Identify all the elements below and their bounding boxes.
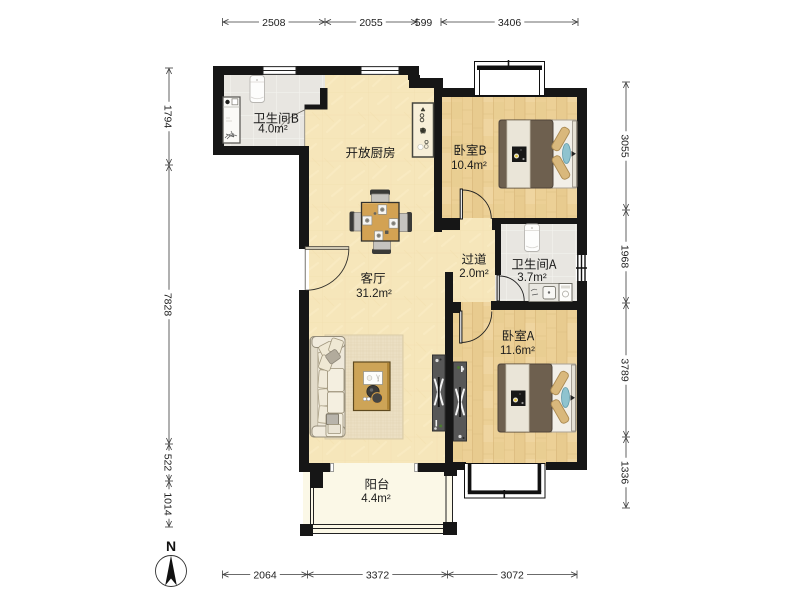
svg-text:599: 599 (415, 17, 433, 29)
svg-text:3072: 3072 (501, 569, 525, 581)
svg-text:2.0m²: 2.0m² (459, 268, 489, 280)
svg-text:31.2m²: 31.2m² (356, 288, 392, 300)
svg-text:N: N (166, 538, 176, 554)
svg-text:3406: 3406 (498, 17, 522, 29)
svg-text:1794: 1794 (162, 105, 174, 129)
svg-text:7828: 7828 (162, 293, 174, 317)
svg-text:3.7m²: 3.7m² (517, 272, 547, 284)
svg-text:3372: 3372 (366, 569, 390, 581)
svg-text:1014: 1014 (162, 492, 174, 516)
svg-text:11.6m²: 11.6m² (500, 345, 535, 357)
svg-text:2508: 2508 (262, 17, 286, 29)
svg-text:2055: 2055 (359, 17, 383, 29)
svg-text:10.4m²: 10.4m² (451, 160, 487, 172)
svg-text:3789: 3789 (619, 358, 631, 382)
svg-text:1336: 1336 (619, 461, 631, 485)
svg-text:3055: 3055 (619, 134, 631, 158)
svg-text:4.4m²: 4.4m² (361, 493, 391, 505)
svg-text:4.0m²: 4.0m² (258, 124, 288, 136)
svg-text:2064: 2064 (253, 569, 277, 581)
svg-text:522: 522 (162, 454, 174, 472)
svg-text:1968: 1968 (619, 245, 631, 269)
